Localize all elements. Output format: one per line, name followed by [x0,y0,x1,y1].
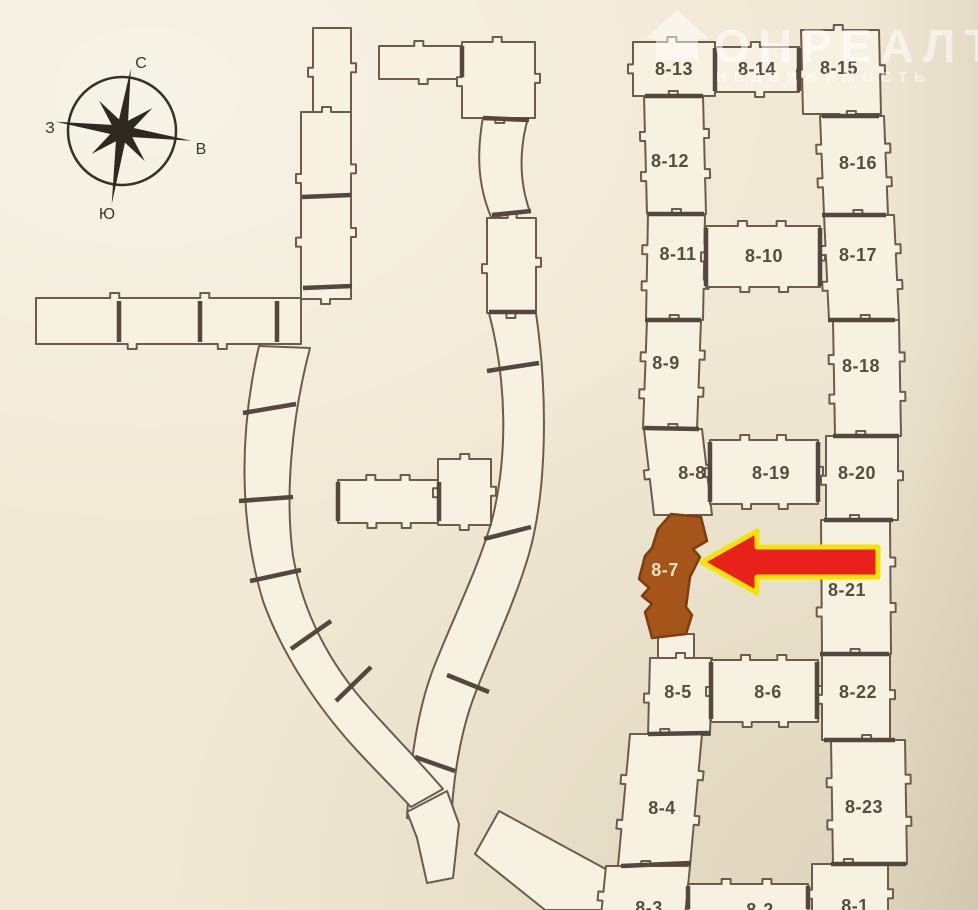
block-label: 8-2 [746,900,774,910]
block-label: 8-8 [678,463,706,483]
block-label: 8-19 [752,463,790,483]
block-label: 8-13 [655,59,693,79]
section-divider [621,863,691,866]
t-column [457,37,540,123]
compass-north-label: С [135,55,147,72]
mid-column [482,213,541,318]
block-label: 8-5 [664,682,692,702]
block-label: 8-16 [839,153,877,173]
block-8-17 [820,210,902,325]
block-label: 8-20 [838,463,876,483]
section-divider [303,286,352,288]
inner-arc-band [407,313,544,831]
top-bar [379,41,463,84]
block-8-11 [642,209,710,325]
compass-south-label: Ю [99,206,115,223]
block-label: 8-1 [841,896,869,910]
section-divider [644,428,699,429]
block-label: 8-18 [842,356,880,376]
block-8-18 [829,315,906,441]
block-label: 8-21 [828,580,866,600]
mid-bar [338,475,439,528]
watermark-brand: ОНРЕАЛТ [714,20,978,72]
top-left-stub [308,28,356,112]
block-label: 8-23 [845,797,883,817]
block-label: 8-22 [839,682,877,702]
bow-connector [479,117,530,217]
block-label: 8-3 [635,898,663,910]
block-8-9 [639,315,705,434]
block-label: 8-17 [839,245,877,265]
block-label: 8-12 [651,151,689,171]
highlight-label: 8-7 [651,560,679,580]
compass-rose: С З В Ю [45,55,206,223]
block-label: 8-11 [659,244,696,264]
compass-east-label: В [196,141,207,158]
section-divider [302,195,351,197]
section-divider [483,118,529,120]
site-plan-photo: 8-7 С З В Ю 8-138-148-158-128-168-118-10… [0,0,978,910]
block-label: 8-9 [652,353,680,373]
watermark-subtitle: НЕДВИЖИМОСТЬ [716,69,932,86]
mid-bar-junction [433,454,496,530]
site-plan-svg: 8-7 С З В Ю 8-138-148-158-128-168-118-10… [0,0,978,910]
compass-west-label: З [45,120,55,137]
left-column [296,107,356,304]
block-label: 8-6 [754,682,782,702]
left-row [36,293,301,349]
section-divider [648,733,710,734]
block-label: 8-10 [745,246,783,266]
block-label: 8-4 [648,798,676,818]
